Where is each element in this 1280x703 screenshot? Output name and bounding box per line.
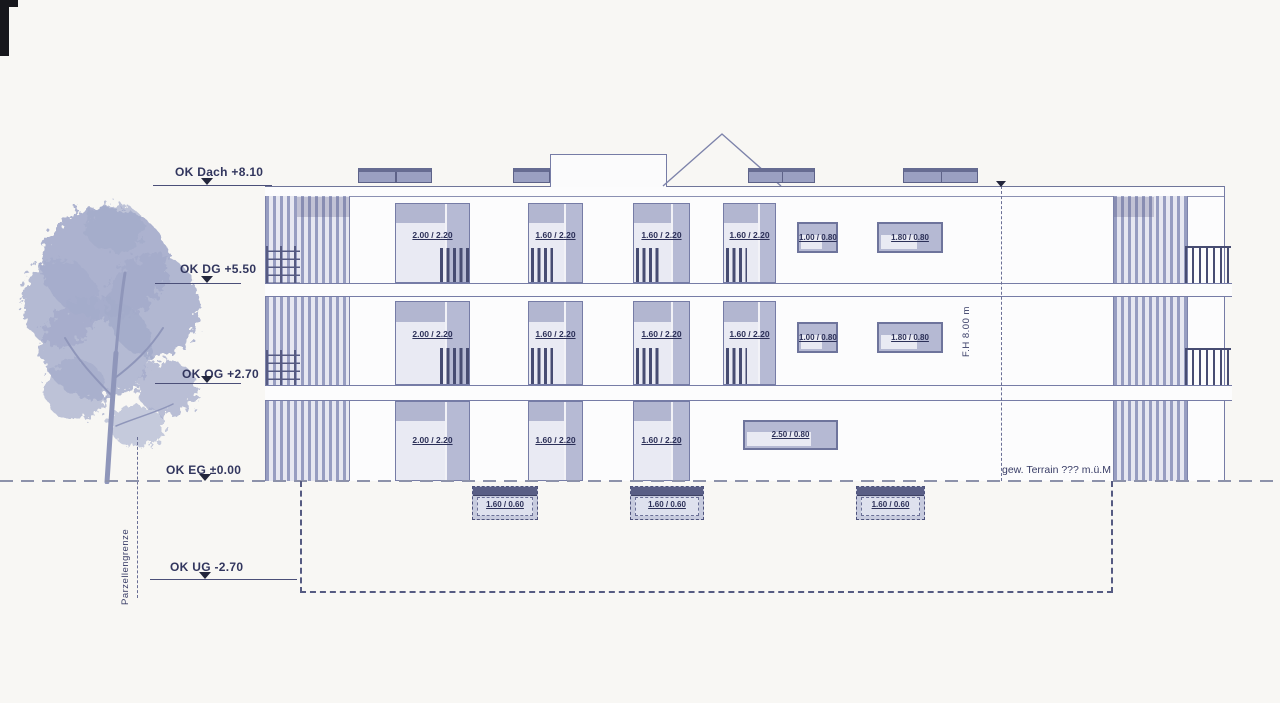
left-louver-shadow (297, 197, 350, 217)
window-dimension-label: 1.60 / 0.60 (473, 500, 537, 509)
basement-window-3: 1.60 / 0.60 (856, 486, 925, 520)
attic-window-6: 1.80 / 0.80 (877, 222, 943, 253)
level-label-dg: OK DG +5.50 (180, 262, 256, 276)
attic-window-5: 1.00 / 0.80 (797, 222, 838, 253)
ground-window-4: 2.50 / 0.80 (743, 420, 838, 450)
window-door-leaf (564, 204, 582, 282)
window-railing (440, 248, 469, 282)
window-door-leaf (758, 302, 775, 384)
level-arrow-ug (199, 572, 211, 579)
basement-window-1: 1.60 / 0.60 (472, 486, 538, 520)
window-dimension-label: 2.00 / 2.20 (396, 435, 469, 445)
roof-solar-panel (358, 168, 432, 183)
window-dimension-label: 1.00 / 0.80 (799, 233, 836, 242)
left-louver-facade (265, 196, 350, 481)
roof-solar-panel (513, 168, 550, 183)
attic-window-1: 2.00 / 2.20 (395, 203, 470, 283)
window-dimension-label: 1.00 / 0.80 (799, 333, 836, 342)
ground-window-1: 2.00 / 2.20 (395, 401, 470, 481)
corner-artifact-top (0, 0, 18, 7)
parcel-boundary-line (137, 437, 138, 598)
facade-height-arrow (996, 181, 1006, 187)
right-louver-facade (1113, 196, 1188, 481)
ground-window-3: 1.60 / 2.20 (633, 401, 690, 481)
right-balcony-railing (1185, 348, 1231, 385)
window-dimension-label: 1.60 / 2.20 (634, 230, 689, 240)
level-line-dg (155, 283, 241, 284)
attic-window-2: 1.60 / 2.20 (528, 203, 583, 283)
floor-slab-og (265, 385, 1232, 401)
panel-divider (941, 172, 943, 182)
facade-height-line (1001, 186, 1002, 481)
window-door-leaf (671, 204, 690, 282)
window-dimension-label: 1.80 / 0.80 (879, 333, 941, 342)
roof-penthouse (550, 154, 667, 187)
window-door-leaf (564, 302, 582, 384)
window-dimension-label: 1.60 / 0.60 (631, 500, 703, 509)
panel-divider (782, 172, 784, 182)
panel-divider (395, 172, 397, 182)
lightwell-cover (631, 487, 703, 496)
left-balcony-railing (266, 246, 300, 284)
corner-artifact (0, 0, 9, 56)
window-dimension-label: 1.60 / 2.20 (724, 230, 775, 240)
basement-outline (300, 481, 1113, 593)
window-dimension-label: 1.60 / 2.20 (634, 329, 689, 339)
window-railing (440, 348, 469, 384)
upper-window-1: 2.00 / 2.20 (395, 301, 470, 385)
ground-window-2: 1.60 / 2.20 (528, 401, 583, 481)
upper-window-2: 1.60 / 2.20 (528, 301, 583, 385)
parcel-boundary-label: Parzellengrenze (120, 495, 131, 605)
level-label-og: OK OG +2.70 (182, 367, 259, 381)
window-railing (531, 248, 553, 282)
upper-window-4: 1.60 / 2.20 (723, 301, 776, 385)
window-railing (726, 248, 747, 282)
window-dimension-label: 1.60 / 2.20 (529, 329, 582, 339)
basement-window-2: 1.60 / 0.60 (630, 486, 704, 520)
window-dimension-label: 1.60 / 2.20 (634, 435, 689, 445)
upper-window-5: 1.00 / 0.80 (797, 322, 838, 353)
elevation-drawing-canvas: OK Dach +8.10 OK DG +5.50 OK OG +2.70 OK… (0, 0, 1280, 703)
window-dimension-label: 1.60 / 0.60 (857, 500, 924, 509)
level-line-roof (153, 185, 272, 186)
window-railing (726, 348, 747, 384)
lightwell-cover (473, 487, 537, 496)
building-right-wall (1224, 186, 1225, 481)
upper-window-3: 1.60 / 2.20 (633, 301, 690, 385)
window-railing (636, 348, 659, 384)
floor-slab-dg (265, 283, 1232, 297)
window-dimension-label: 1.60 / 2.20 (724, 329, 775, 339)
window-dimension-label: 1.80 / 0.80 (879, 233, 941, 242)
lightwell-cover (857, 487, 924, 496)
terrain-annotation: gew. Terrain ??? m.ü.M (1002, 464, 1111, 476)
window-railing (636, 248, 659, 282)
level-line-og (155, 383, 241, 384)
window-door-leaf (758, 204, 775, 282)
window-dimension-label: 2.50 / 0.80 (745, 430, 836, 439)
window-door-leaf (671, 302, 690, 384)
window-dimension-label: 1.60 / 2.20 (529, 435, 582, 445)
facade-height-label: F.H 8.00 m (961, 295, 972, 357)
attic-window-3: 1.60 / 2.20 (633, 203, 690, 283)
right-louver-shadow (1114, 197, 1154, 217)
tree-illustration (15, 188, 215, 484)
upper-window-6: 1.80 / 0.80 (877, 322, 943, 353)
right-balcony-railing (1185, 246, 1231, 283)
left-balcony-railing (266, 350, 300, 388)
level-line-ug (150, 579, 297, 580)
window-dimension-label: 2.00 / 2.20 (396, 230, 469, 240)
level-arrow-roof (201, 178, 213, 185)
window-railing (531, 348, 553, 384)
window-dimension-label: 2.00 / 2.20 (396, 329, 469, 339)
attic-window-4: 1.60 / 2.20 (723, 203, 776, 283)
level-arrow-og (201, 376, 213, 383)
window-dimension-label: 1.60 / 2.20 (529, 230, 582, 240)
level-arrow-dg (201, 276, 213, 283)
roof-solar-panel (748, 168, 815, 183)
level-label-roof: OK Dach +8.10 (175, 165, 263, 179)
roof-solar-panel (903, 168, 978, 183)
